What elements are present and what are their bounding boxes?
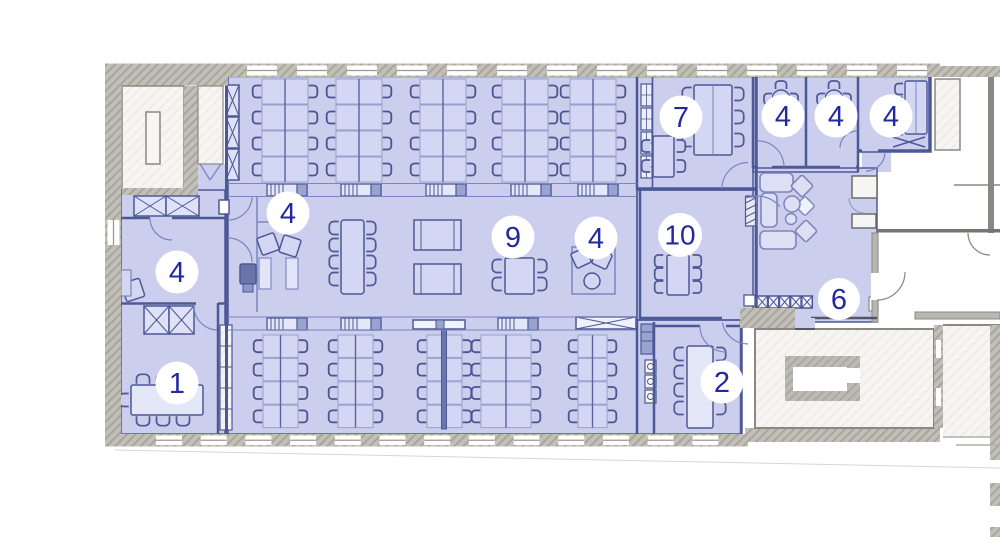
svg-text:1: 1	[169, 368, 185, 400]
svg-text:4: 4	[883, 101, 899, 133]
svg-text:10: 10	[664, 220, 695, 251]
svg-text:4: 4	[828, 101, 844, 133]
svg-text:9: 9	[505, 222, 521, 254]
svg-text:4: 4	[280, 198, 296, 230]
svg-text:4: 4	[169, 257, 185, 289]
svg-text:7: 7	[673, 102, 689, 134]
svg-text:6: 6	[831, 284, 847, 316]
svg-text:4: 4	[775, 101, 791, 133]
svg-text:4: 4	[588, 223, 604, 255]
svg-text:2: 2	[714, 367, 730, 399]
